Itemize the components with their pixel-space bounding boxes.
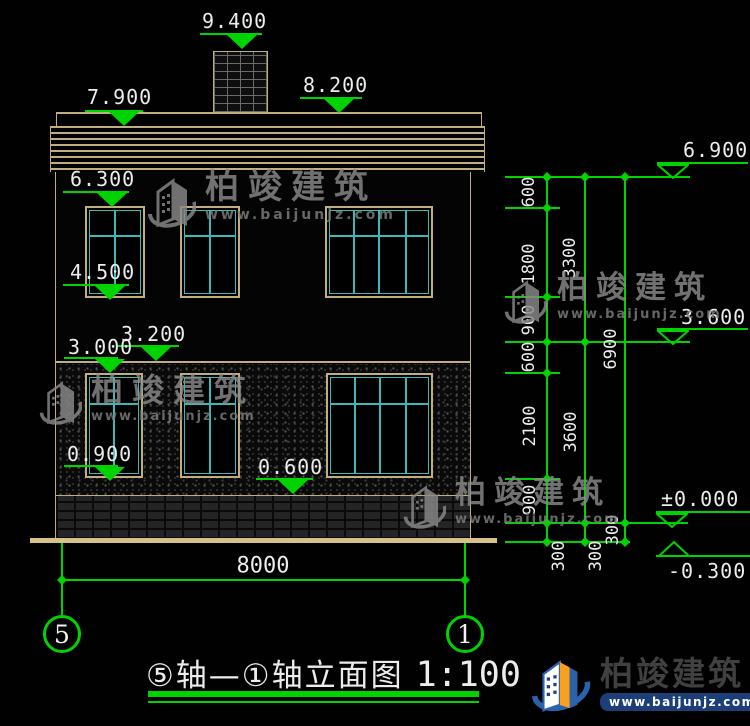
watermark-brand: 柏竣建筑 — [557, 273, 722, 304]
window-transom — [184, 235, 236, 237]
dim-value: 3600 — [561, 412, 581, 453]
dim-tick-icon — [460, 575, 470, 585]
elevation-triangle-icon — [227, 35, 257, 49]
elevation-triangle-icon — [109, 112, 139, 126]
elevation-triangle-icon — [656, 513, 688, 528]
window-2f-right — [325, 206, 433, 298]
elevation-label: 0.600 — [258, 455, 323, 479]
elevation-triangle-icon — [278, 480, 308, 494]
elevation-label: 7.900 — [87, 85, 152, 109]
window-2f-middle — [180, 206, 240, 298]
footer-brand-logo: 柏竣建筑 www.baijunjz.com — [528, 650, 750, 718]
footer-brand-url: www.baijunjz.com — [600, 693, 750, 711]
axis-number: 1 — [457, 620, 473, 649]
title-scale: 1:100 — [416, 655, 521, 695]
elevation-triangle-icon — [95, 359, 125, 373]
dim-tick-icon — [542, 368, 552, 378]
dimension-line — [624, 176, 626, 543]
window-mullion — [209, 377, 211, 474]
ground-line — [30, 538, 497, 543]
axis-bubble-5: 5 — [43, 615, 81, 653]
window-mullion — [354, 377, 356, 474]
dim-tick-icon — [542, 474, 552, 484]
window-transom — [89, 235, 141, 237]
window-mullion — [353, 210, 355, 294]
dimension-line — [546, 176, 548, 543]
dim-tick-icon — [542, 337, 552, 347]
elevation-underline — [656, 555, 750, 557]
dim-value: 600 — [519, 342, 539, 373]
window-transom — [330, 403, 429, 405]
window-transom — [184, 403, 236, 405]
brand-logo-icon — [528, 650, 594, 718]
dim-value: 600 — [519, 177, 539, 208]
elevation-triangle-icon — [95, 467, 125, 481]
elevation-label: 4.500 — [70, 260, 135, 284]
dim-tick-icon — [542, 292, 552, 302]
drawing-title: ⑤轴—①轴立面图 1:100 — [146, 650, 521, 695]
dim-tick-icon — [580, 518, 590, 528]
elevation-label: 6.300 — [70, 167, 135, 191]
elevation-label: 3.000 — [68, 335, 133, 359]
level-line — [505, 522, 688, 524]
dimension-line — [584, 176, 586, 543]
window-1f-right — [326, 373, 433, 478]
window-transom — [89, 403, 139, 405]
elevation-label: 6.900 — [683, 138, 748, 162]
plinth-brick-base — [56, 495, 470, 539]
dim-value: 300 — [603, 515, 623, 546]
window-mullion — [378, 210, 380, 294]
dim-value: 1800 — [519, 244, 539, 285]
elevation-triangle-icon — [141, 347, 171, 361]
dim-tick-icon — [620, 172, 630, 182]
dim-tick-icon — [542, 172, 552, 182]
elevation-label: 3.600 — [681, 305, 746, 329]
elevation-triangle-icon — [324, 99, 354, 113]
chimney — [213, 51, 268, 113]
elevation-drawing: 9.400 7.900 8.200 6.300 4.500 3.200 3.00… — [0, 0, 750, 726]
footer-brand-name: 柏竣建筑 — [600, 657, 750, 690]
window-mullion — [405, 210, 407, 294]
window-transom — [329, 235, 429, 237]
dim-value: 2100 — [520, 406, 540, 447]
axis-number: 5 — [54, 620, 70, 649]
elevation-label: 9.400 — [202, 9, 267, 33]
window-mullion — [379, 377, 381, 474]
elevation-triangle-icon — [95, 286, 125, 300]
title-underline-thin — [148, 701, 479, 703]
dim-value: 300 — [549, 541, 569, 572]
dim-value: 3300 — [560, 238, 580, 279]
dim-tick-icon — [542, 518, 552, 528]
title-text: ⑤轴—①轴立面图 — [146, 650, 404, 695]
window-mullion — [405, 377, 407, 474]
window-1f-middle — [180, 373, 240, 478]
window-mullion — [209, 210, 211, 294]
elevation-label: 0.900 — [67, 442, 132, 466]
dim-tick-icon — [580, 337, 590, 347]
roof-fascia-bands — [50, 126, 485, 172]
dim-value: 900 — [519, 305, 539, 336]
title-underline-thick — [148, 691, 479, 697]
dim-value: 6900 — [601, 329, 621, 370]
dim-tick-icon — [542, 203, 552, 213]
elevation-triangle-icon — [97, 193, 127, 207]
axis-bubble-1: 1 — [446, 615, 484, 653]
elevation-label: 8.200 — [303, 73, 368, 97]
dim-value: 900 — [520, 485, 540, 516]
dim-value: 8000 — [237, 554, 290, 579]
elevation-label: -0.300 — [668, 559, 746, 583]
elevation-label: ±0.000 — [661, 487, 739, 511]
dimension-line — [62, 579, 465, 581]
dim-tick-icon — [57, 575, 67, 585]
dim-tick-icon — [580, 172, 590, 182]
